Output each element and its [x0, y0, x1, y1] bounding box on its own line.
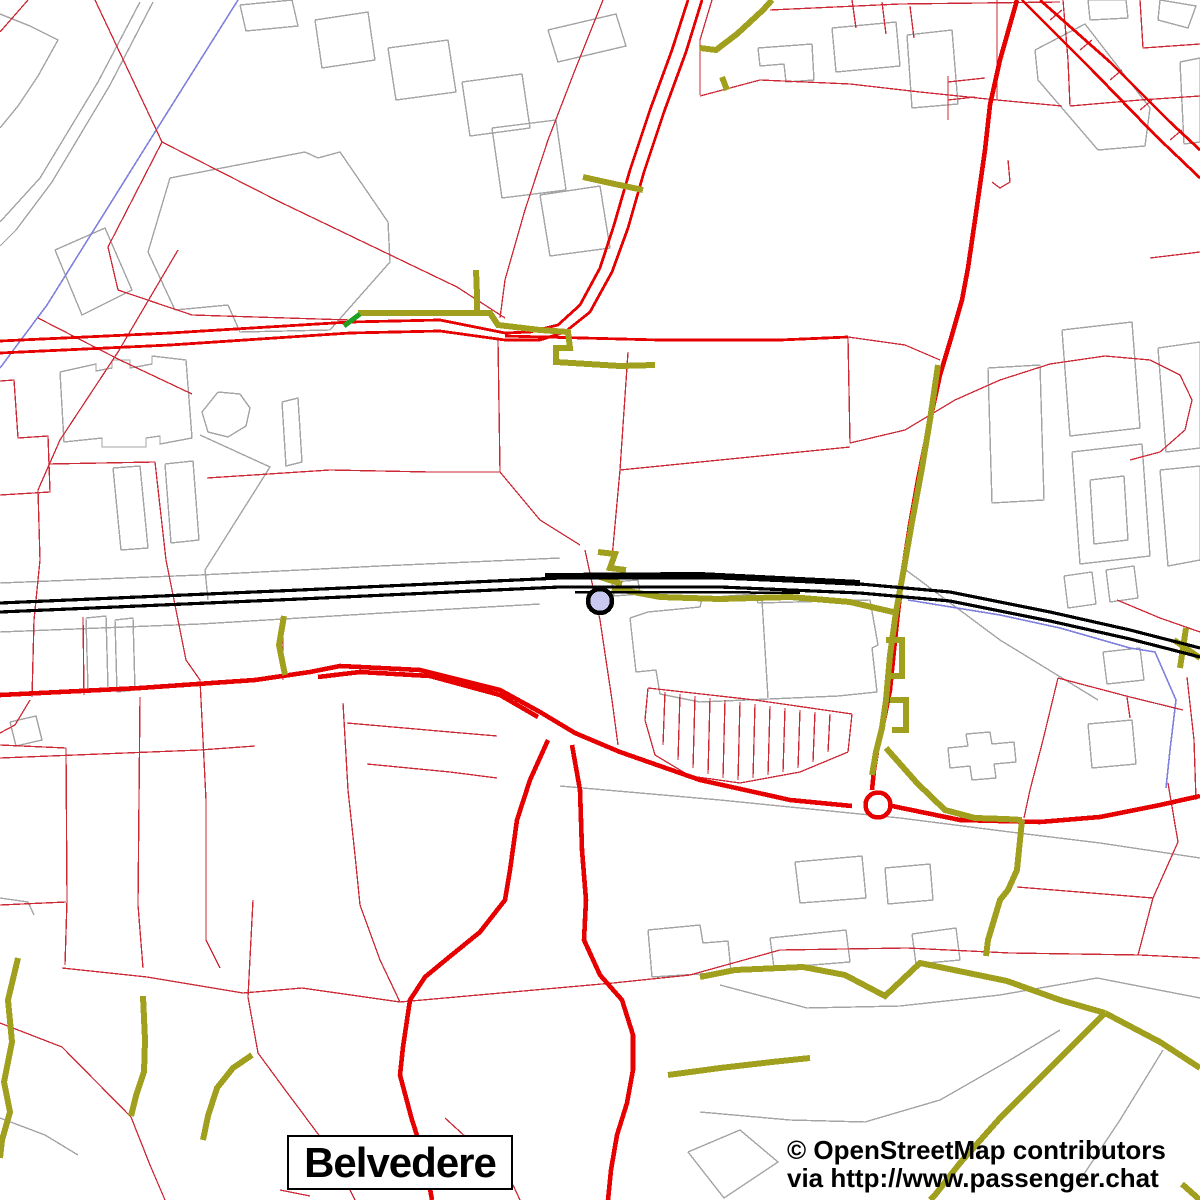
medium-roads-segment: [1040, 0, 1200, 150]
minor-roads-segment: [648, 688, 852, 714]
buildings-segment: [1088, 720, 1136, 768]
olive-paths-segment: [986, 820, 1022, 956]
minor-roads-segment: [1187, 677, 1196, 800]
minor-roads-segment: [798, 710, 800, 768]
minor-roads-segment: [65, 748, 67, 965]
minor-roads-segment: [0, 745, 66, 748]
buildings-segment: [720, 978, 1200, 1008]
buildings-segment: [1180, 58, 1200, 144]
buildings-segment: [86, 616, 108, 690]
minor-roads-segment: [882, 2, 886, 34]
minor-roads-segment: [138, 697, 143, 968]
minor-roads-segment: [0, 380, 50, 495]
minor-roads-segment: [0, 1023, 165, 1200]
major-roads-segment: [872, 0, 1017, 790]
minor-roads-segment: [848, 337, 940, 360]
olive-paths-segment: [131, 996, 145, 1116]
minor-roads-segment: [48, 462, 200, 680]
buildings-segment: [1103, 648, 1144, 684]
minor-roads-segment: [500, 0, 603, 318]
map-attribution: © OpenStreetMap contributors via http://…: [787, 1136, 1192, 1192]
buildings-segment: [1088, 0, 1128, 20]
minor-roads-segment: [1150, 252, 1200, 258]
medium-roads-segment: [0, 331, 505, 353]
minor-roads-segment: [693, 696, 695, 768]
buildings-segment: [282, 398, 302, 466]
railway-station-marker: [588, 589, 612, 613]
minor-roads-segment: [948, 78, 985, 82]
place-label-belvedere: Belvedere: [287, 1135, 513, 1190]
minor-roads-segment: [645, 688, 648, 720]
minor-roads-segment: [1117, 600, 1200, 632]
buildings-segment: [165, 461, 199, 543]
water-segment: [0, 0, 238, 368]
minor-roads-segment: [753, 704, 755, 778]
buildings-segment: [113, 466, 148, 550]
medium-roads-segment: [505, 0, 688, 333]
minor-roads-segment: [32, 490, 40, 697]
olive-paths-segment: [279, 616, 285, 675]
buildings-segment: [540, 186, 610, 256]
map-canvas[interactable]: [0, 0, 1200, 1200]
minor-roads-segment: [678, 694, 680, 760]
buildings-segment: [55, 228, 132, 315]
buildings-segment: [462, 74, 530, 136]
buildings-segment: [762, 600, 768, 698]
minor-roads-segment: [1140, 0, 1200, 48]
buildings-segment: [0, 2, 153, 246]
major-roads-segment: [572, 745, 633, 1200]
minor-roads-segment: [1127, 697, 1130, 718]
buildings-segment: [1062, 322, 1140, 436]
buildings-segment: [907, 30, 958, 108]
buildings-segment: [0, 898, 34, 915]
olive-paths-segment: [0, 958, 18, 1158]
minor-roads-segment: [768, 706, 770, 775]
minor-roads-segment: [498, 340, 580, 545]
buildings-segment: [902, 567, 1098, 700]
minor-roads-segment: [813, 712, 815, 762]
buildings-segment: [200, 435, 270, 600]
buildings-segment: [115, 618, 135, 692]
minor-roads-segment: [700, 80, 1062, 106]
olive-paths-segment: [1180, 628, 1186, 668]
olive-paths-segment: [668, 1058, 810, 1075]
olive-paths-segment: [583, 177, 643, 190]
olive-paths-segment: [476, 270, 477, 313]
buildings-segment: [0, 14, 58, 128]
minor-roads-segment: [0, 700, 30, 733]
buildings-segment: [912, 928, 960, 964]
attribution-line-2: via http://www.passenger.chat: [787, 1164, 1192, 1192]
minor-roads-segment: [738, 702, 740, 780]
minor-roads-segment: [992, 160, 1010, 188]
buildings-segment: [630, 594, 878, 702]
minor-roads-segment: [1070, 96, 1200, 106]
minor-roads-segment: [612, 352, 628, 558]
buildings-segment: [0, 558, 560, 583]
medium-roads-segment: [1022, 0, 1200, 178]
buildings-segment: [1158, 0, 1196, 28]
minor-roads-segment: [0, 902, 66, 905]
buildings-segment: [948, 732, 1016, 780]
buildings-segment: [1160, 466, 1200, 566]
place-label-text: Belvedere: [304, 1139, 496, 1187]
olive-paths-segment: [700, 0, 772, 50]
minor-roads-segment: [162, 142, 505, 318]
olive-paths-segment: [722, 77, 727, 90]
buildings-segment: [688, 1130, 778, 1198]
buildings-segment: [795, 856, 866, 903]
roundabout-marker: [866, 793, 891, 818]
buildings-segment: [148, 152, 390, 332]
buildings-segment: [758, 44, 814, 82]
buildings-segment: [1064, 572, 1096, 608]
minor-roads-segment: [1063, 0, 1070, 106]
minor-roads-segment: [708, 698, 710, 774]
buildings-segment: [10, 716, 42, 746]
minor-roads-segment: [848, 714, 852, 752]
minor-roads-segment: [1017, 887, 1153, 898]
major-roads-segment: [400, 740, 548, 1200]
buildings-segment: [60, 356, 192, 447]
minor-roads-segment: [207, 470, 500, 478]
minor-roads-segment: [200, 680, 220, 968]
buildings-segment: [202, 392, 250, 437]
minor-roads-segment: [95, 0, 350, 320]
buildings-segment: [648, 925, 731, 977]
layer-water: [0, 0, 1176, 788]
buildings-segment: [1106, 566, 1138, 602]
minor-roads-segment: [783, 708, 785, 772]
map-view[interactable]: Belvedere © OpenStreetMap contributors v…: [0, 0, 1200, 1200]
buildings-segment: [1035, 24, 1150, 150]
buildings-segment: [885, 864, 933, 904]
attribution-line-1: © OpenStreetMap contributors: [787, 1136, 1192, 1164]
buildings-segment: [240, 0, 298, 31]
minor-roads-segment: [620, 447, 850, 470]
minor-roads-segment: [848, 338, 850, 443]
medium-roads-segment: [505, 336, 848, 340]
minor-roads-segment: [62, 948, 1200, 1002]
minor-roads-segment: [0, 746, 255, 758]
minor-roads-segment: [347, 723, 497, 736]
buildings-segment: [315, 12, 375, 68]
buildings-segment: [1090, 476, 1128, 544]
minor-roads-segment: [663, 692, 665, 745]
buildings-segment: [0, 1118, 78, 1155]
olive-paths-segment: [1105, 1013, 1200, 1068]
buildings-segment: [832, 22, 900, 72]
olive-paths-segment: [598, 552, 626, 570]
buildings-segment: [388, 40, 456, 100]
minor-roads-segment: [723, 700, 725, 778]
buildings-segment: [548, 14, 626, 62]
minor-roads-segment: [948, 97, 975, 100]
minor-roads-segment: [367, 764, 497, 778]
olive-paths-segment: [890, 700, 906, 730]
minor-roads-segment: [828, 714, 830, 752]
olive-paths-segment: [203, 1055, 252, 1140]
buildings-segment: [988, 365, 1044, 503]
buildings-segment: [1072, 444, 1150, 564]
minor-roads-segment: [280, 1190, 310, 1196]
minor-roads-segment: [910, 6, 914, 38]
minor-roads-segment: [1024, 678, 1058, 818]
minor-roads-segment: [343, 703, 400, 1002]
minor-roads-segment: [852, 0, 856, 28]
